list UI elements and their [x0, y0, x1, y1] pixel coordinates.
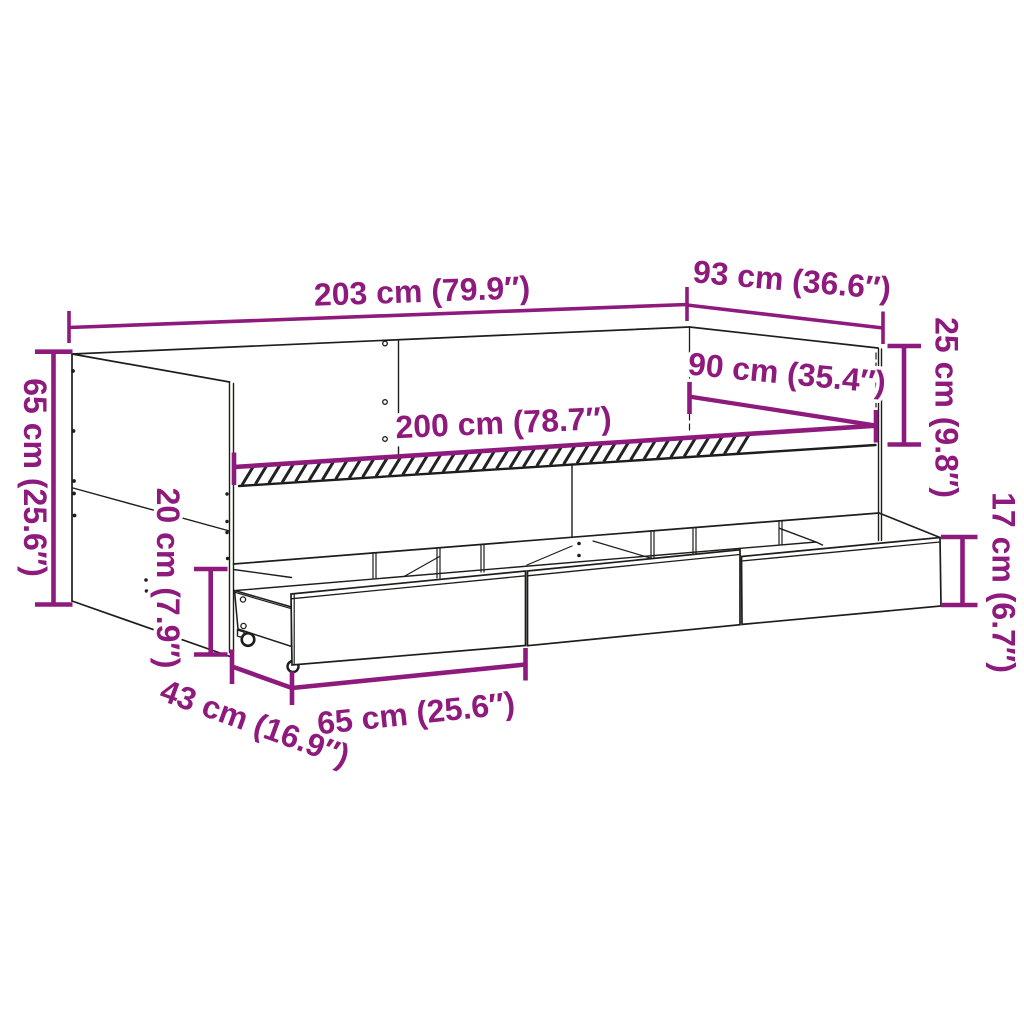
svg-text:25 cm (9.8″): 25 cm (9.8″) [929, 317, 965, 498]
svg-text:17 cm (6.7″): 17 cm (6.7″) [986, 492, 1022, 673]
svg-text:65 cm (25.6″): 65 cm (25.6″) [17, 378, 53, 577]
svg-text:20 cm (7.9″): 20 cm (7.9″) [150, 488, 186, 669]
svg-text:203 cm (79.9″): 203 cm (79.9″) [313, 269, 530, 313]
